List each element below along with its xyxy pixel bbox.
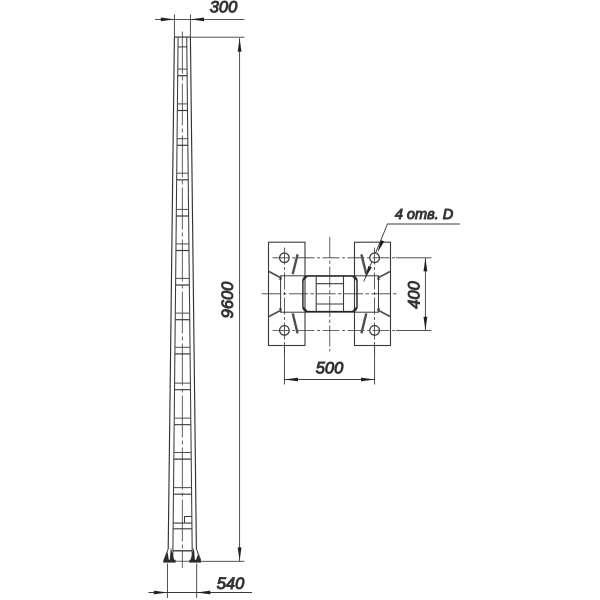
- svg-text:300: 300: [210, 0, 238, 17]
- svg-text:400: 400: [406, 280, 424, 308]
- svg-text:540: 540: [217, 575, 245, 593]
- svg-text:4 отв. D: 4 отв. D: [395, 207, 453, 223]
- svg-text:9600: 9600: [219, 281, 237, 319]
- svg-text:500: 500: [316, 360, 344, 378]
